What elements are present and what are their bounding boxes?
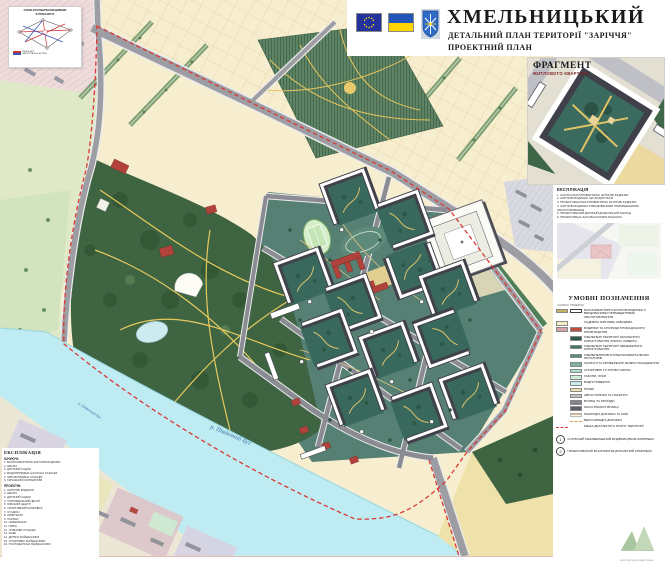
legend-notes: 1 ІСНУЮЧИЙ НЕЗАВЕРШЕНИЙ БУДІВНИЦТВОМ КОМ… — [556, 435, 662, 456]
legend-row: ПЛЯЖІ — [556, 388, 662, 393]
fragment-map — [528, 58, 664, 184]
sheet-title: ХМЕЛЬНИЦЬКИЙ — [447, 6, 645, 29]
legend-row: ЗАХИСНІ ТА ПРИБЕРЕЖНІ ЗЕЛЕНІ НАСАДЖЕННЯ — [556, 362, 662, 367]
legend-col-projected: ПРОЕКТНІ — [570, 304, 584, 307]
legend-row: БУДИНКИ ТА СПОРУДИ ГРОМАДСЬКОГО ПРИЗНАЧЕ… — [556, 327, 662, 334]
legend-row-label: МАГІСТРАЛЬНІ ВУЛИЦІ — [584, 406, 618, 410]
legend-row-label: СПОРТИВНІ ТА ІГРОВІ ГАЗОНИ — [584, 369, 631, 373]
scheme-diagram — [13, 17, 77, 51]
legend-note: 1 ІСНУЮЧИЙ НЕЗАВЕРШЕНИЙ БУДІВНИЦТВОМ КОМ… — [556, 435, 662, 444]
scheme-subtitle: В ПЛАНІ МІСТА — [9, 13, 81, 16]
legend-row: ПІШОХІДНІ ДОРІЖКИ ТА АЛЕЇ — [556, 413, 662, 418]
note-number-badge: 2 — [556, 447, 565, 456]
explication-item: 6. ГАРАЖНИЙ КООПЕРАТИВ — [4, 479, 97, 483]
scheme-title: СХЕМА РОЗТАШУВАННЯ ДІЛЯНКИ — [9, 9, 81, 12]
legend-row-label: ВОДНІ ПОВЕРХНІ — [584, 381, 610, 385]
studio-logo: архітектурна майстерня — [612, 524, 662, 562]
building-explication-list: 1. ІСНУЮЧІ БАГАТОКВАРТИРНІ ЖИТЛОВІ БУДИН… — [557, 194, 661, 220]
legend-note: 2 ПРОЕКТОВАНИЙ БАГАТОФУНКЦІОНАЛЬНИЙ КОМП… — [556, 447, 662, 456]
legend-row: ОЗЕЛЕНЕННЯ ВНУТРІШНЬОКВАРТАЛЬНИХ ПРОСТОР… — [556, 354, 662, 361]
legend-row: ОЗЕЛЕНЕНІ ТЕРИТОРІЇ ЗАГАЛЬНОГО КОРИСТУВА… — [556, 336, 662, 343]
legend-swatch-projected — [570, 400, 582, 405]
sheet-subtitle: ДЕТАЛЬНИЙ ПЛАН ТЕРИТОРІЇ "ЗАРІЧЧЯ" — [448, 31, 632, 40]
scheme-legend-label: МАГІСТРАЛЬНІ ВУЛИЦІ — [23, 53, 47, 55]
legend-swatch-projected — [570, 381, 582, 386]
note-text: ПРОЕКТОВАНИЙ БАГАТОФУНКЦІОНАЛЬНИЙ КОМПЛЕ… — [568, 449, 653, 453]
explication-projected-list: 1. ЖИТЛОВІ БУДИНКИ2. ШКОЛА3. ДИТЯЧИЙ САД… — [4, 489, 97, 547]
note-number-badge: 1 — [556, 435, 565, 444]
legend-row-label: БАГАТОКВАРТИРНІ ЖИТЛОВІ БУДИНКИ З ВБУДОВ… — [584, 309, 662, 320]
logo-mark — [617, 524, 657, 552]
building-explication: ЕКСПЛІКАЦІЯ 1. ІСНУЮЧІ БАГАТОКВАРТИРНІ Ж… — [557, 187, 661, 284]
legend-row: ГАЗОНИ, ЛУКИ — [556, 375, 662, 380]
legend-swatch-existing — [556, 309, 568, 314]
legend-swatch-existing — [556, 321, 568, 326]
scheme-legend-line — [13, 51, 21, 52]
building-explication-title: ЕКСПЛІКАЦІЯ — [557, 187, 661, 192]
fragment-subtitle: ЖИТЛОВОГО КВАРТАЛУ — [533, 71, 592, 76]
legend-row-label: МЕЖА ДЕТАЛЬНОГО ПЛАНУ ТЕРИТОРІЇ — [584, 425, 644, 429]
plan-sheet: р. Південний Буг р. Південний Буг СХЕМА … — [0, 0, 665, 574]
building-explication-item: 6. ПРОЕКТОВАНА ЗАГАЛЬНООСВІТНЯ ШКОЛА — [557, 216, 661, 220]
legend-swatch-projected — [570, 413, 582, 418]
legend-row: ВУЛИЦІ ТА ПРОЇЗДИ — [556, 400, 662, 405]
fragment-title: ФРАГМЕНТ — [533, 61, 592, 71]
fragment-inset: ФРАГМЕНТ ЖИТЛОВОГО КВАРТАЛУ — [527, 57, 665, 185]
legend-title: УМОВНІ ПОЗНАЧЕННЯ — [556, 295, 662, 302]
legend-row: СПОРТИВНІ ТА ІГРОВІ ГАЗОНИ — [556, 369, 662, 374]
park-plaza — [344, 82, 356, 94]
legend-swatch-projected — [570, 362, 582, 367]
ukraine-flag — [388, 13, 414, 32]
logo-caption: архітектурна майстерня — [612, 558, 662, 562]
explication-item: 16. ГОСПОДАРСЬКІ МАЙДАНЧИКИ — [4, 543, 97, 547]
legend-swatch-projected — [570, 309, 582, 314]
explication-existing-list: 1. БАГАТОКВАРТИРНІ ЖИТЛОВІ БУДИНКИ2. ШКО… — [4, 461, 97, 483]
explication-title: ЕКСПЛІКАЦІЯ — [4, 450, 97, 455]
legend-col-existing: ІСНУЮЧІ — [556, 304, 570, 307]
context-map-faded — [557, 223, 661, 279]
legend-swatch-projected — [570, 375, 582, 380]
legend-row: АВТОСТОЯНКИ ТА ПАРКІНГИ — [556, 394, 662, 399]
legend-swatch-projected — [570, 406, 582, 411]
map-legend: УМОВНІ ПОЗНАЧЕННЯ ІСНУЮЧІ ПРОЕКТНІ БАГАТ… — [556, 295, 662, 459]
location-scheme: СХЕМА РОЗТАШУВАННЯ ДІЛЯНКИ В ПЛАНІ МІСТА… — [8, 6, 82, 68]
legend-row-label: БУДИНКИ ТА СПОРУДИ ГРОМАДСЬКОГО ПРИЗНАЧЕ… — [584, 327, 662, 334]
fragment-header: ФРАГМЕНТ ЖИТЛОВОГО КВАРТАЛУ — [533, 61, 592, 76]
legend-row-label: ВЕЛОСИПЕДНІ ДОРІЖКИ — [584, 419, 622, 423]
legend-swatch-existing — [556, 427, 568, 428]
legend-row: БАГАТОКВАРТИРНІ ЖИТЛОВІ БУДИНКИ З ВБУДОВ… — [556, 309, 662, 320]
scheme-legend-row: МАГІСТРАЛЬНІ ВУЛИЦІ — [13, 53, 81, 55]
legend-row: ОЗЕЛЕНЕНІ ТЕРИТОРІЇ ОБМЕЖЕНОГО КОРИСТУВА… — [556, 345, 662, 352]
legend-row-label: САДИБНА ЖИТЛОВА ЗАБУДОВА — [584, 321, 632, 325]
legend-row-label: ЗАХИСНІ ТА ПРИБЕРЕЖНІ ЗЕЛЕНІ НАСАДЖЕННЯ — [584, 362, 659, 366]
legend-swatch-existing — [556, 327, 568, 332]
eu-flag — [356, 13, 382, 32]
legend-swatch-projected — [570, 394, 582, 399]
legend-row-label: ОЗЕЛЕНЕНІ ТЕРИТОРІЇ ЗАГАЛЬНОГО КОРИСТУВА… — [584, 336, 662, 343]
legend-row-label: ПЛЯЖІ — [584, 388, 594, 392]
legend-row-label: ВУЛИЦІ ТА ПРОЇЗДИ — [584, 400, 614, 404]
legend-row-label: АВТОСТОЯНКИ ТА ПАРКІНГИ — [584, 394, 628, 398]
legend-row: САДИБНА ЖИТЛОВА ЗАБУДОВА — [556, 321, 662, 326]
legend-row: ВОДНІ ПОВЕРХНІ — [556, 381, 662, 386]
scheme-legend-line — [13, 53, 21, 54]
legend-swatch-projected — [570, 388, 582, 393]
legend-row: ВЕЛОСИПЕДНІ ДОРІЖКИ — [556, 419, 662, 424]
legend-column-headers: ІСНУЮЧІ ПРОЕКТНІ — [556, 304, 662, 307]
legend-row-label: ОЗЕЛЕНЕННЯ ВНУТРІШНЬОКВАРТАЛЬНИХ ПРОСТОР… — [584, 354, 662, 361]
legend-row-label: ОЗЕЛЕНЕНІ ТЕРИТОРІЇ ОБМЕЖЕНОГО КОРИСТУВА… — [584, 345, 662, 352]
legend-row-label: ГАЗОНИ, ЛУКИ — [584, 375, 606, 379]
legend-swatch-projected — [570, 327, 582, 332]
legend-swatch-projected — [570, 369, 582, 374]
legend-row: МЕЖА ДЕТАЛЬНОГО ПЛАНУ ТЕРИТОРІЇ — [556, 425, 662, 430]
legend-swatch-projected — [570, 421, 582, 422]
legend-swatch-projected — [570, 354, 582, 359]
explication-panel: ЕКСПЛІКАЦІЯ ІСНУЮЧІ: 1. БАГАТОКВАРТИРНІ … — [2, 448, 99, 574]
scheme-legend: МЕЖА ДПТ МАГІСТРАЛЬНІ ВУЛИЦІ — [13, 51, 81, 55]
legend-row-label: ПІШОХІДНІ ДОРІЖКИ ТА АЛЕЇ — [584, 413, 628, 417]
city-coat-of-arms — [421, 9, 440, 39]
legend-row: МАГІСТРАЛЬНІ ВУЛИЦІ — [556, 406, 662, 411]
legend-swatch-projected — [570, 345, 582, 350]
title-block: ХМЕЛЬНИЦЬКИЙ ДЕТАЛЬНИЙ ПЛАН ТЕРИТОРІЇ "З… — [347, 0, 665, 56]
legend-rows: БАГАТОКВАРТИРНІ ЖИТЛОВІ БУДИНКИ З ВБУДОВ… — [556, 309, 662, 430]
sheet-subtitle-2: ПРОЕКТНИЙ ПЛАН — [448, 43, 532, 52]
legend-swatch-projected — [570, 336, 582, 341]
note-text: ІСНУЮЧИЙ НЕЗАВЕРШЕНИЙ БУДІВНИЦТВОМ КОМПЛ… — [568, 437, 655, 441]
